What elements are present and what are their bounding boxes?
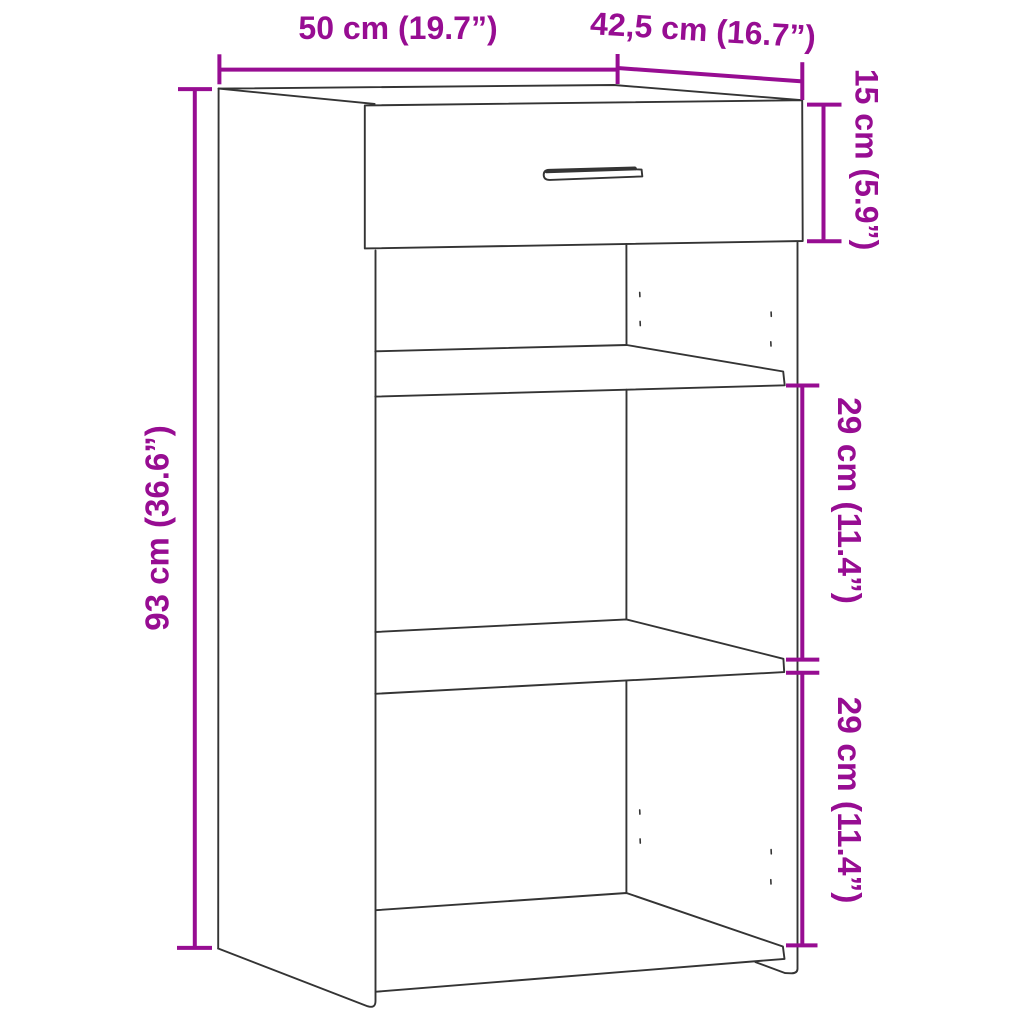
svg-text:50 cm (19.7”): 50 cm (19.7”)	[298, 10, 497, 46]
svg-text:15 cm (5.9”): 15 cm (5.9”)	[849, 69, 885, 250]
svg-text:29 cm (11.4”): 29 cm (11.4”)	[830, 397, 867, 604]
svg-text:29 cm (11.4”): 29 cm (11.4”)	[830, 697, 867, 904]
svg-text:93 cm (36.6”): 93 cm (36.6”)	[139, 425, 176, 630]
svg-text:42,5 cm (16.7”): 42,5 cm (16.7”)	[589, 5, 817, 55]
